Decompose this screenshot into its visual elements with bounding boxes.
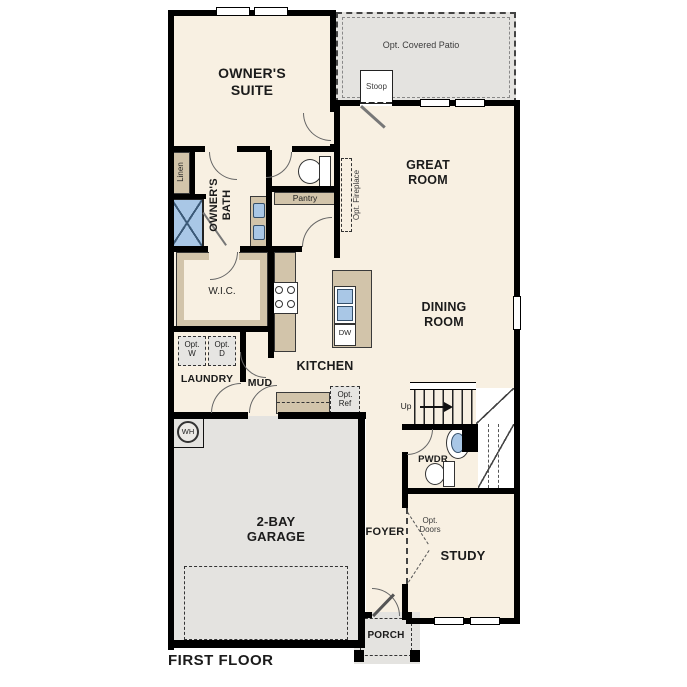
stair-arrow-line [420,406,444,408]
floor-great-dining [336,106,520,416]
wall [334,100,340,258]
wall [268,252,274,332]
room-label-laundry: LAUNDRY [172,373,242,385]
under-stair-dash-1 [488,424,489,488]
garage-door-outline [184,566,348,640]
window [216,7,250,16]
label-stoop: Stoop [360,82,393,91]
wall [462,424,478,452]
wall [168,246,208,252]
wall [402,584,408,620]
burner-3 [275,300,283,308]
water-heater-label: WH [177,428,199,437]
room-label-mud: MUD [244,377,276,389]
window [420,99,450,107]
wall [292,146,336,152]
room-label-porch: PORCH [362,630,410,642]
window [254,7,288,16]
label-pantry: Pantry [274,193,336,203]
room-label-pwdr: PWDR [410,454,456,465]
first-floor-plan: DW WH [0,0,687,687]
room-label-wic: W.I.C. [192,286,252,298]
shower [170,198,204,248]
opt-doors-opening [406,508,408,584]
burner-4 [287,300,295,308]
wall [168,194,206,199]
window [434,617,464,625]
island-sink-basin-2 [337,306,353,321]
label-stairs-up: Up [397,401,415,411]
wall [402,488,520,494]
wall [330,10,336,112]
wall [168,412,248,419]
wall [402,494,408,508]
wall [168,326,274,332]
room-label-kitchen: KITCHEN [295,359,355,374]
porch-post-left [354,650,364,662]
wall [402,452,408,490]
label-opt-doors: Opt. Doors [414,516,446,535]
under-stair-diagonal [478,424,514,488]
wall [168,640,364,648]
window [470,617,500,625]
fireplace-outline [341,158,352,232]
room-label-garage: 2-BAY GARAGE [226,514,326,545]
room-label-owners-suite: OWNER'S SUITE [192,65,312,98]
room-label-owners-bath: OWNER'S BATH [208,166,238,244]
burner-2 [287,286,295,294]
stoop-door-threshold [360,102,392,104]
wall [168,146,205,152]
window [513,296,521,330]
room-label-dining-room: DINING ROOM [414,300,474,330]
porch-post-right [410,650,420,662]
vanity-sink-2 [253,225,265,240]
wall [190,150,195,196]
under-stair-dash-2 [498,424,499,488]
burner-1 [275,286,283,294]
wall [168,10,336,16]
wall [358,612,372,618]
wall [278,412,366,419]
stair-arrow-head [444,402,453,412]
room-label-foyer: FOYER [362,526,408,539]
stair-stringer [410,382,476,390]
mud-counter [276,392,330,414]
plan-title: FIRST FLOOR [168,652,338,670]
window [455,99,485,107]
vanity-sink-1 [253,203,265,218]
label-opt-ref: Opt. Ref [330,390,360,409]
wall [514,100,520,624]
stair-winder-diagonal [476,388,514,424]
label-linen: Linen [176,150,186,194]
wc-toilet-tank [319,156,331,187]
label-opt-fireplace: Opt. Fireplace [352,158,364,232]
label-opt-washer: Opt. W [178,340,206,359]
wall [268,332,274,358]
dishwasher-label: DW [334,329,356,338]
island-sink-basin-1 [337,289,353,304]
pwdr-toilet-bowl [425,463,445,485]
room-label-study: STUDY [432,548,494,563]
label-opt-covered-patio: Opt. Covered Patio [336,40,506,51]
wall [272,186,340,192]
label-opt-dryer: Opt. D [208,340,236,359]
mud-counter-dashed [277,402,329,403]
room-label-great-room: GREAT ROOM [398,158,458,188]
